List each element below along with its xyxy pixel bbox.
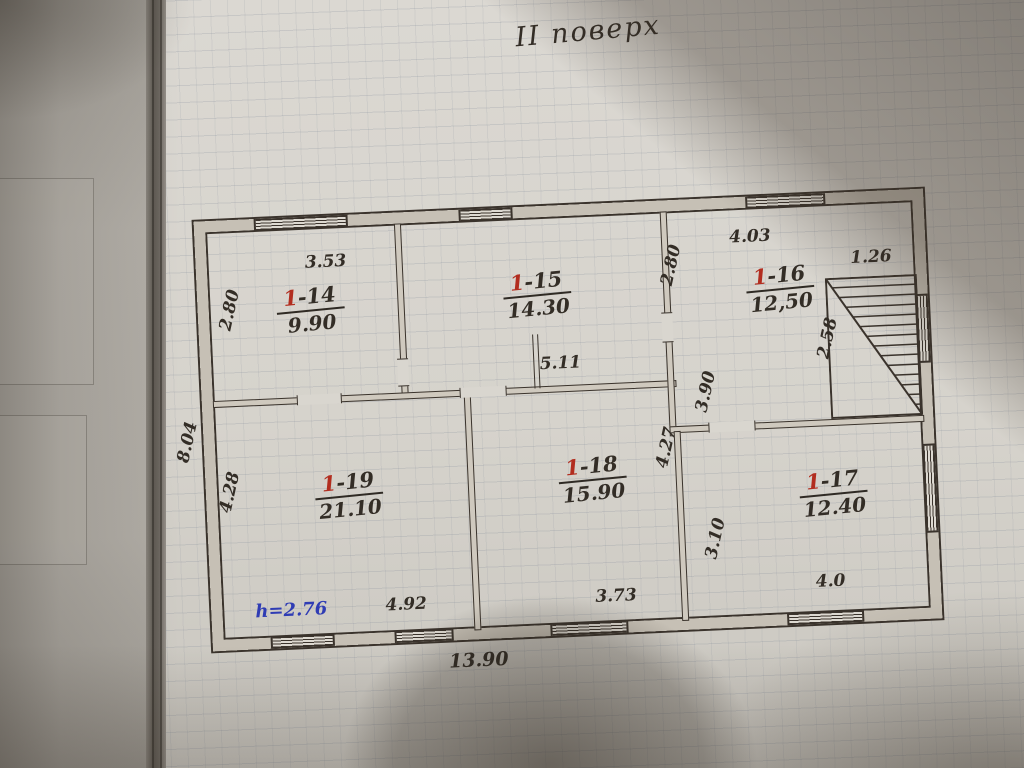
room-number: -18 <box>579 451 619 480</box>
dim-bottom-room17: 4.0 <box>795 570 866 593</box>
faint-sketch-rect <box>0 178 94 385</box>
room-number: -17 <box>819 465 859 494</box>
dim-stairs-width: 1.26 <box>826 245 917 269</box>
door-opening-16 <box>661 312 673 342</box>
photo-of-notebook: ІІ поверх <box>0 0 1024 768</box>
dim-bottom-room18: 3.73 <box>571 584 662 608</box>
adjacent-page <box>0 0 150 768</box>
floor-plan: 1-14 9.90 1-15 14.30 1-16 12,50 1-17 12.… <box>194 189 943 652</box>
door-opening-18 <box>459 386 506 398</box>
door-opening-14 <box>397 358 409 386</box>
dim-ceiling-height: h=2.76 <box>246 598 337 623</box>
door-opening-17 <box>708 421 755 433</box>
room-number: -16 <box>766 260 806 289</box>
dim-bottom-room19: 4.92 <box>361 592 452 616</box>
dim-overall-width: 13.90 <box>428 647 529 674</box>
window-top-room15 <box>458 207 512 221</box>
room-label-1-19: 1-19 21.10 <box>292 465 406 526</box>
room-number: -14 <box>297 281 337 310</box>
room-label-1-17: 1-17 12.40 <box>776 463 890 524</box>
room-number: -19 <box>335 467 375 496</box>
room-label-1-15: 1-15 14.30 <box>480 264 594 325</box>
room-number: -15 <box>523 266 563 295</box>
staircase <box>825 274 923 419</box>
room-label-1-16: 1-16 12,50 <box>723 258 837 319</box>
door-opening-19 <box>297 393 342 405</box>
page-edge-line <box>160 0 162 768</box>
room-label-1-14: 1-14 9.90 <box>254 279 368 340</box>
room-label-1-18: 1-18 15.90 <box>535 449 649 510</box>
faint-sketch-rect <box>0 415 87 565</box>
page-edge-line <box>152 0 154 768</box>
